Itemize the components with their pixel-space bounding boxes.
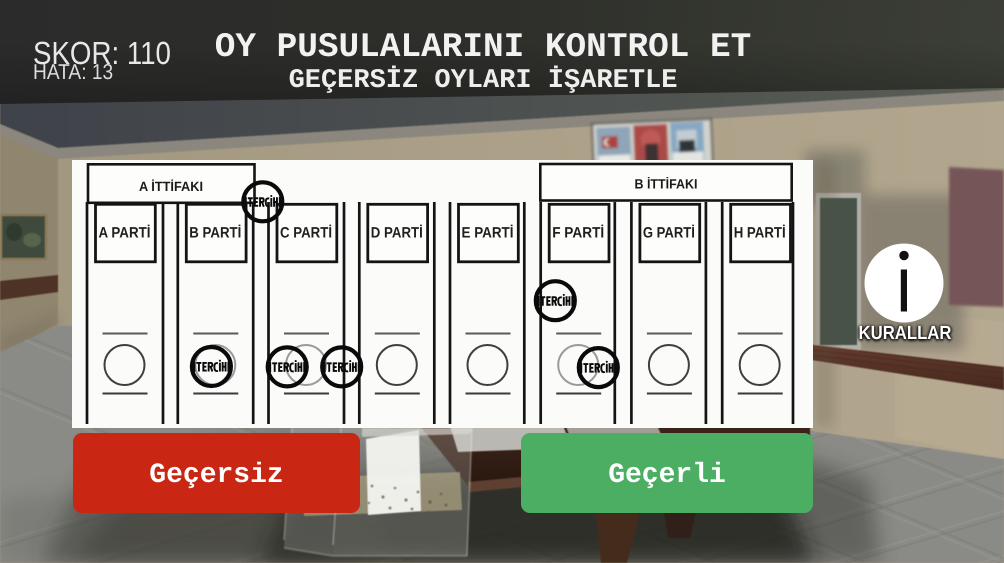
svg-text:A İTTİFAKI: A İTTİFAKI — [139, 179, 203, 194]
svg-text:A PARTİ: A PARTİ — [99, 225, 151, 242]
svg-text:E PARTİ: E PARTİ — [462, 225, 514, 242]
svg-text:D PARTİ: D PARTİ — [371, 225, 423, 242]
svg-text:B PARTİ: B PARTİ — [189, 225, 241, 242]
svg-text:H PARTİ: H PARTİ — [734, 225, 786, 242]
svg-text:B İTTİFAKI: B İTTİFAKI — [635, 177, 698, 192]
svg-text:C PARTİ: C PARTİ — [280, 225, 332, 242]
svg-text:G PARTİ: G PARTİ — [643, 225, 695, 242]
svg-text:F PARTİ: F PARTİ — [552, 225, 604, 242]
